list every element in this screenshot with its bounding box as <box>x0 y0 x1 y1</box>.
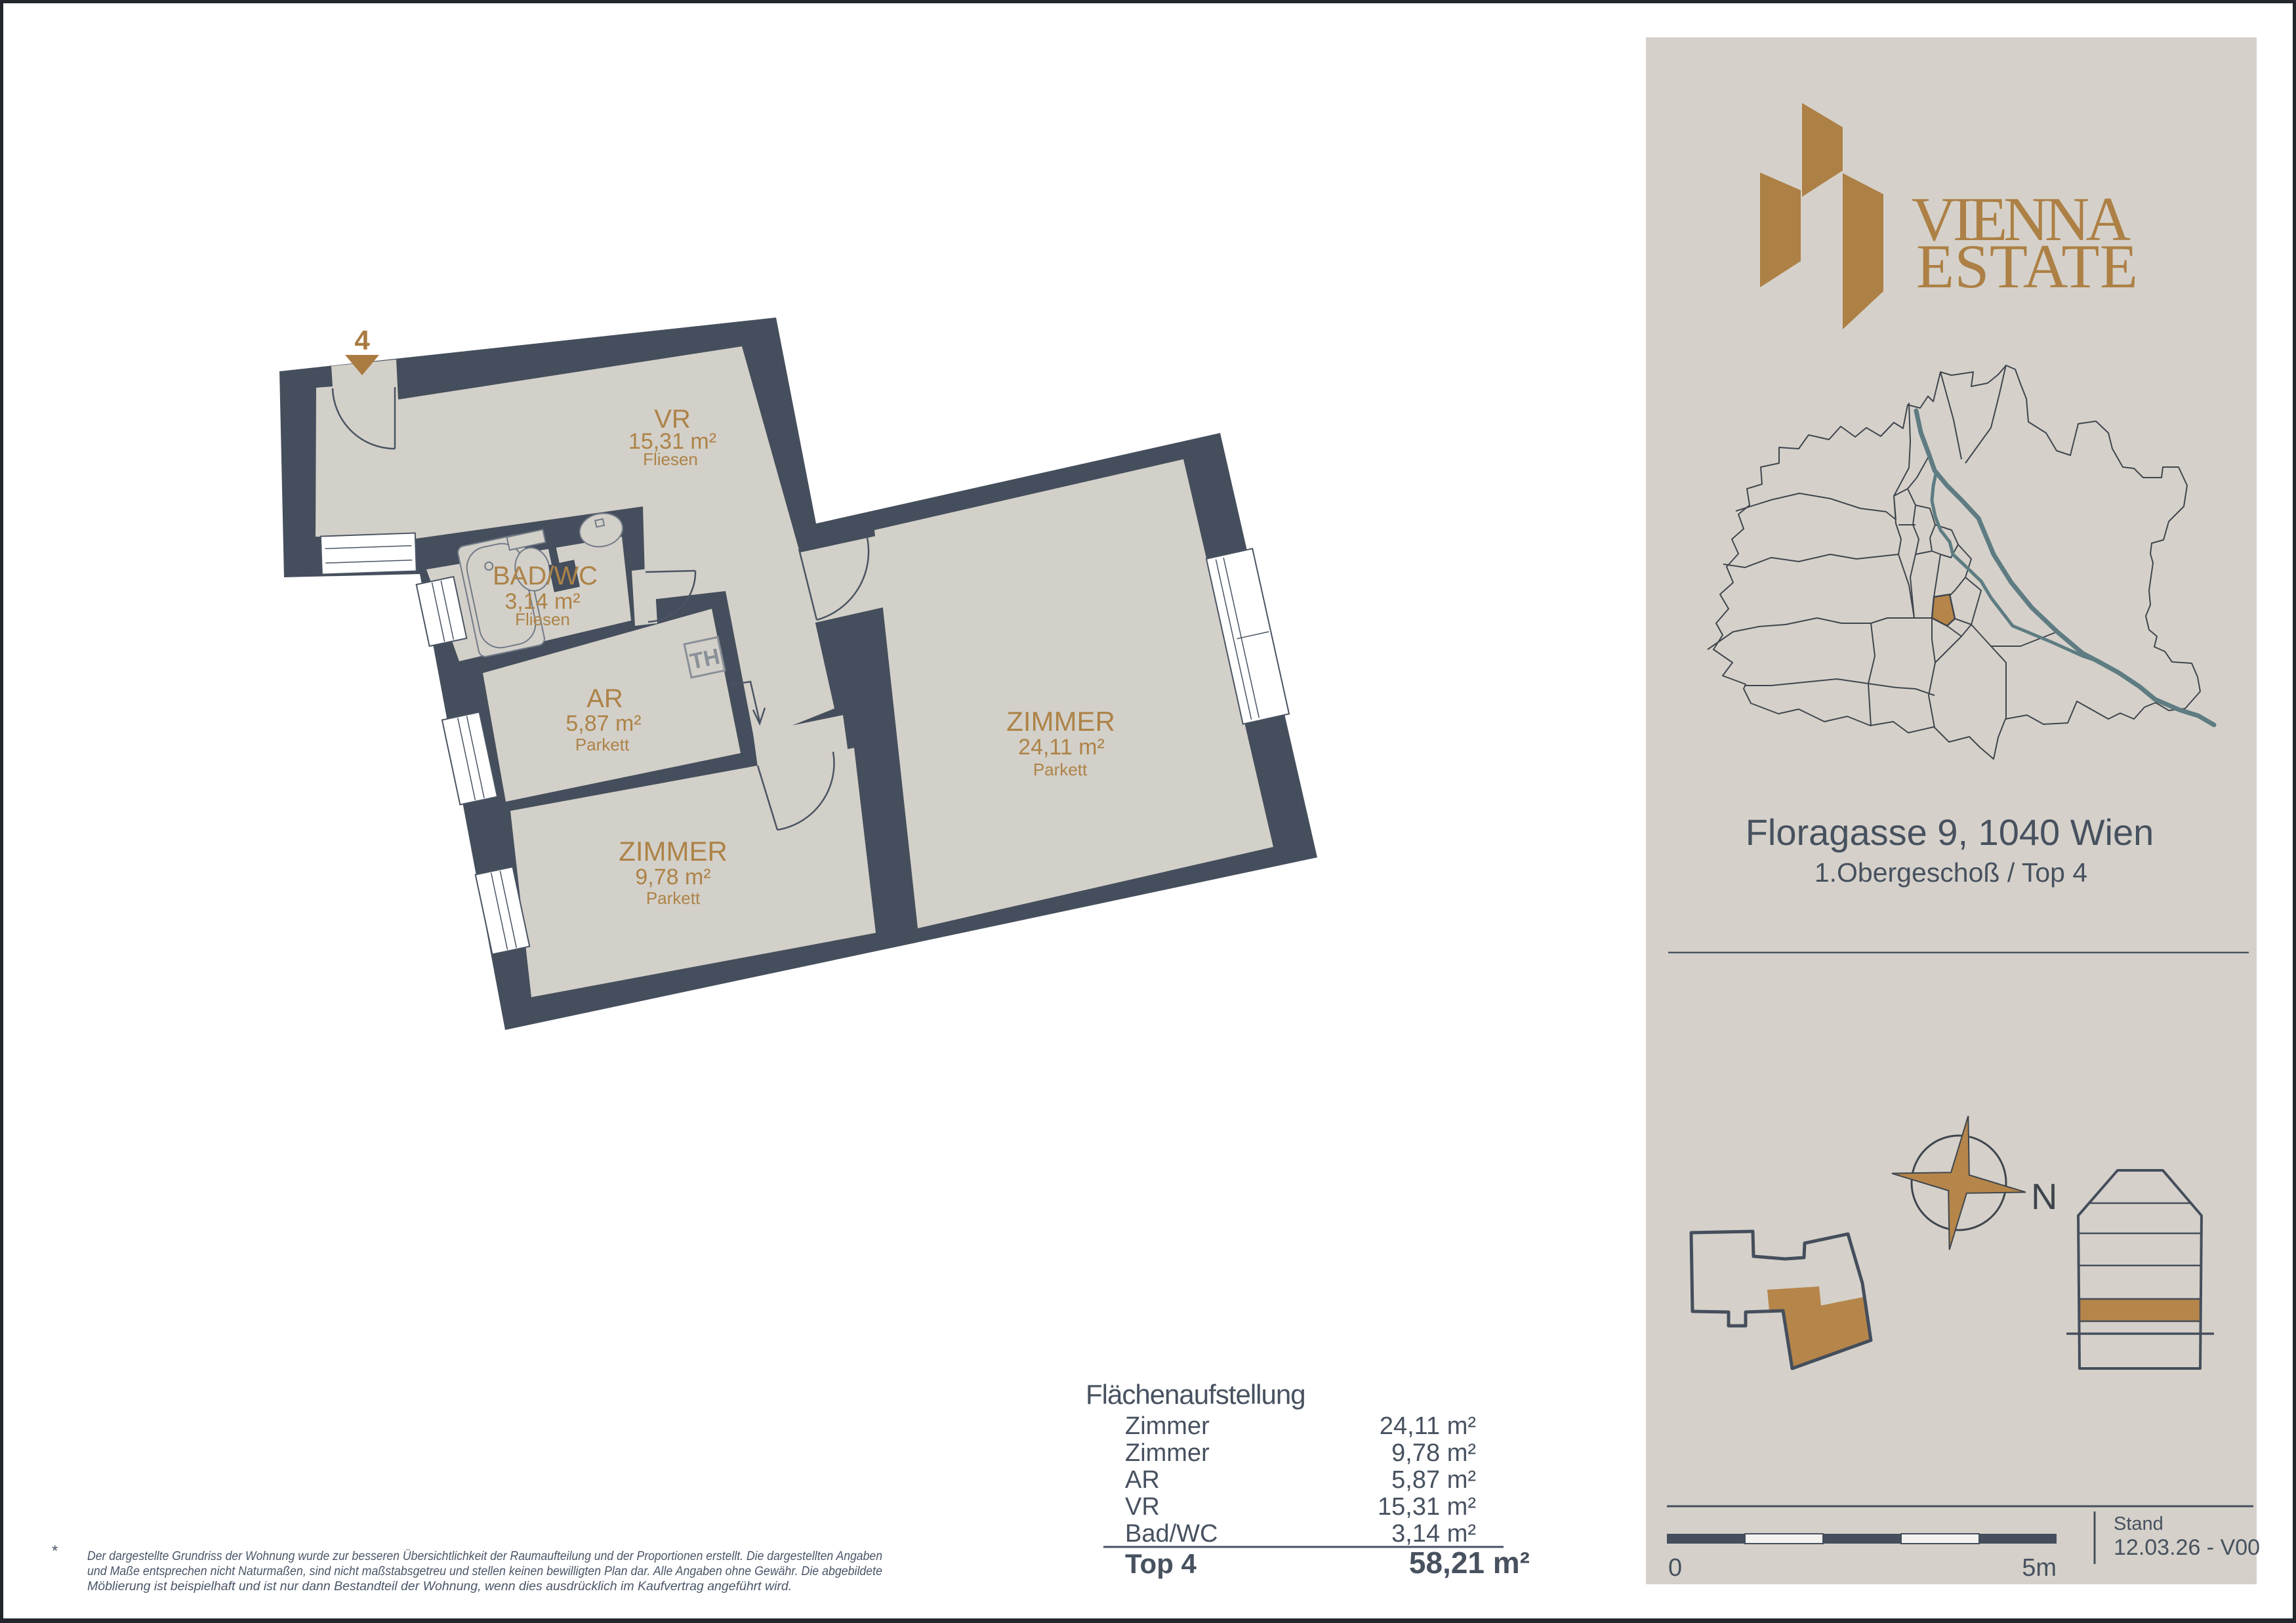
svg-text:Parkett: Parkett <box>646 888 701 908</box>
svg-text:15,31 m²: 15,31 m² <box>1378 1493 1476 1521</box>
svg-text:Parkett: Parkett <box>575 735 630 754</box>
svg-text:AR: AR <box>1125 1466 1160 1494</box>
svg-text:Möblierung ist beispielhaft un: Möblierung ist beispielhaft und ist nur … <box>87 1579 792 1593</box>
svg-text:ZIMMER: ZIMMER <box>619 836 728 867</box>
svg-text:Fliesen: Fliesen <box>515 609 570 629</box>
svg-text:VR: VR <box>1125 1493 1160 1521</box>
svg-text:0: 0 <box>1668 1554 1682 1582</box>
svg-text:Zimmer: Zimmer <box>1125 1439 1210 1467</box>
svg-text:*: * <box>51 1542 58 1560</box>
svg-text:12.03.26 - V00: 12.03.26 - V00 <box>2114 1535 2260 1560</box>
svg-text:Top 4: Top 4 <box>1125 1548 1197 1579</box>
svg-text:24,11 m²: 24,11 m² <box>1380 1412 1476 1440</box>
svg-text:und Maße entsprechen nicht Nat: und Maße entsprechen nicht Naturmaßen, s… <box>87 1564 882 1578</box>
svg-text:Flächenaufstellung: Flächenaufstellung <box>1086 1379 1305 1410</box>
svg-text:Fliesen: Fliesen <box>643 449 698 469</box>
svg-text:N: N <box>2031 1176 2057 1217</box>
svg-text:ESTATE: ESTATE <box>1916 232 2138 301</box>
svg-text:Bad/WC: Bad/WC <box>1125 1520 1218 1548</box>
svg-text:Zimmer: Zimmer <box>1125 1412 1210 1440</box>
svg-text:58,21 m²: 58,21 m² <box>1409 1546 1530 1580</box>
svg-text:Parkett: Parkett <box>1033 760 1088 779</box>
svg-text:Der dargestellte Grundriss der: Der dargestellte Grundriss der Wohnung w… <box>87 1549 882 1563</box>
svg-text:5,87 m²: 5,87 m² <box>565 711 641 736</box>
svg-text:9,78 m²: 9,78 m² <box>1391 1439 1476 1467</box>
svg-text:Stand: Stand <box>2114 1513 2163 1534</box>
svg-text:24,11 m²: 24,11 m² <box>1018 735 1105 760</box>
svg-text:BAD/WC: BAD/WC <box>493 562 598 590</box>
svg-text:Floragasse 9, 1040 Wien: Floragasse 9, 1040 Wien <box>1746 811 2154 853</box>
svg-text:4: 4 <box>354 325 370 356</box>
svg-text:9,78 m²: 9,78 m² <box>635 865 710 890</box>
svg-text:ZIMMER: ZIMMER <box>1006 706 1115 737</box>
svg-text:AR: AR <box>586 684 623 713</box>
svg-text:5,87 m²: 5,87 m² <box>1391 1466 1476 1494</box>
svg-text:5m: 5m <box>2022 1554 2057 1582</box>
svg-text:3,14 m²: 3,14 m² <box>1391 1520 1476 1548</box>
svg-text:1.Obergeschoß / Top 4: 1.Obergeschoß / Top 4 <box>1814 857 2087 888</box>
